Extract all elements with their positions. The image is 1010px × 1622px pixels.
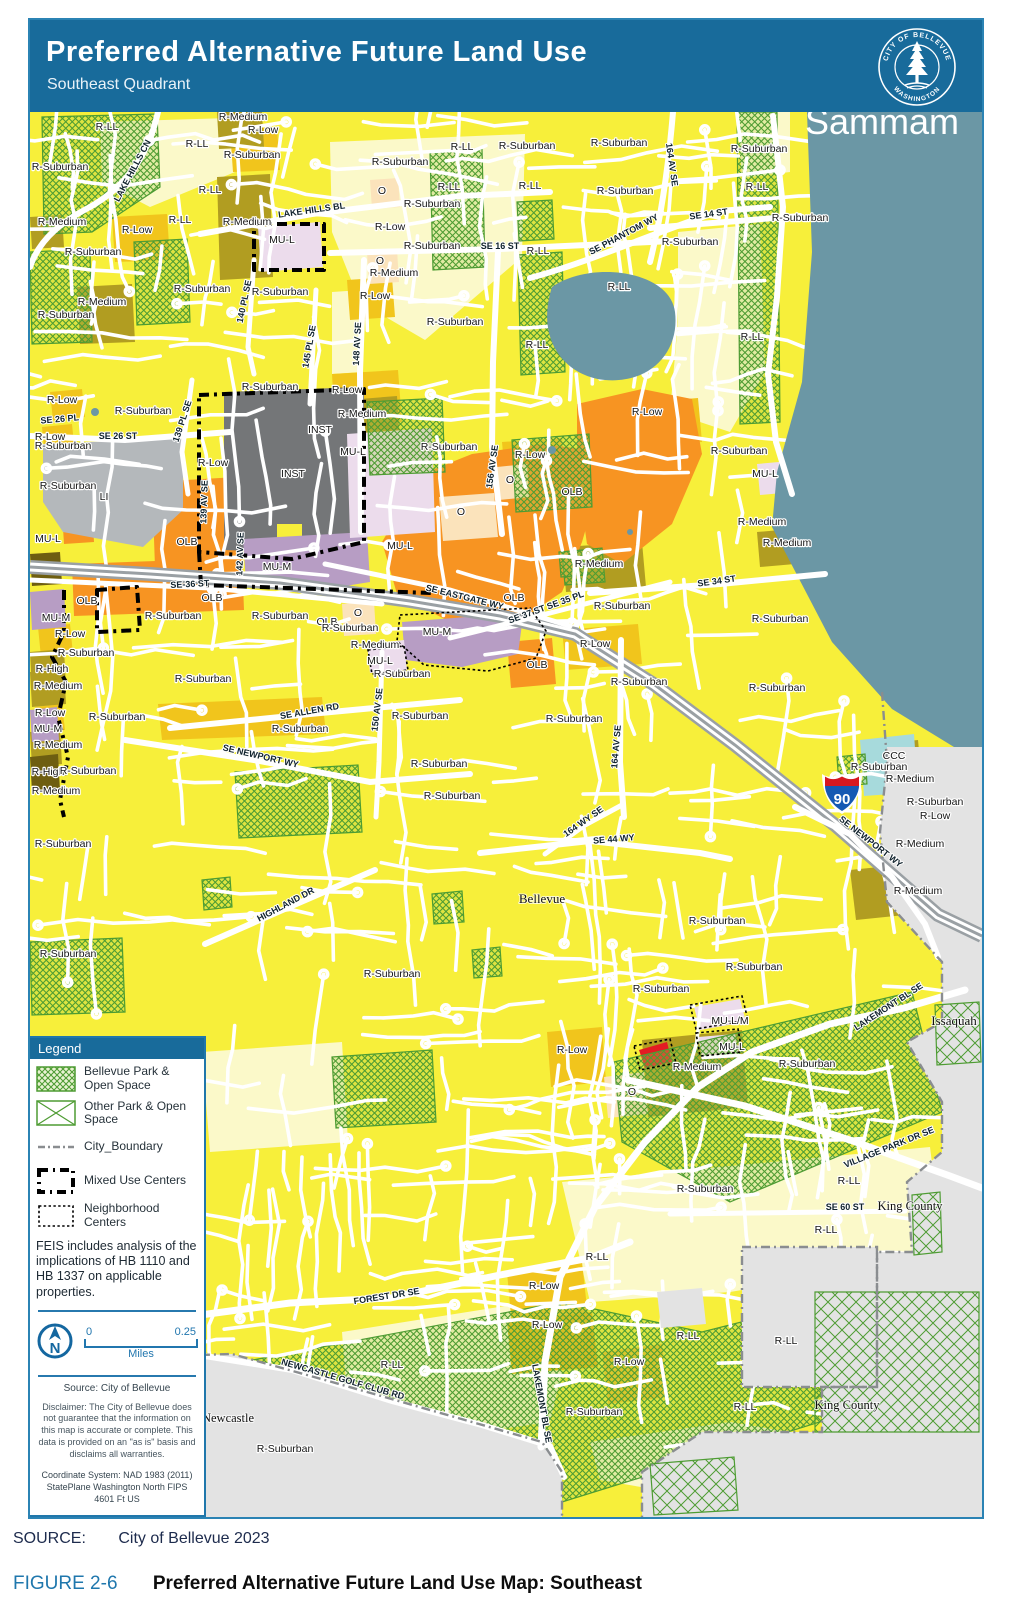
zone-label: R-Medium [673, 1061, 722, 1073]
road-label: SE 26 ST [99, 431, 138, 441]
map-title: Preferred Alternative Future Land Use [46, 36, 587, 69]
zone-label: R-Low [47, 394, 78, 406]
legend-item-mixed-use-centers: Mixed Use Centers [36, 1167, 198, 1195]
legend-item-neighborhood-centers: Neighborhood Centers [36, 1202, 198, 1230]
zone-label: R-Suburban [145, 610, 202, 622]
other-park-swatch-icon [36, 1100, 80, 1126]
other-park-area [650, 1457, 738, 1515]
zone-label: R-Suburban [424, 790, 481, 802]
lake-sammamish-label: Sammam [805, 112, 959, 142]
zone-label: R-Medium [38, 216, 87, 228]
legend-item-label: Bellevue Park & Open Space [84, 1065, 169, 1093]
place-label: Newcastle [202, 1411, 255, 1425]
scale-bar: 0 0.25 Miles [84, 1326, 198, 1360]
zone-label: R-Low [375, 221, 406, 233]
zone-label: R-Suburban [633, 983, 690, 995]
zone-label: R-Low [55, 628, 86, 640]
zone-label: OLB [176, 536, 197, 548]
zone-label: MU-L [752, 468, 778, 480]
bellevue-park-area [432, 891, 464, 924]
zone-label: R-LL [775, 1335, 798, 1347]
map-subtitle: Southeast Quadrant [47, 76, 190, 94]
zone-label: OLB [503, 592, 524, 604]
road-label: 139 AV SE [198, 480, 210, 524]
zone-label: R-Medium [738, 516, 787, 528]
zone-label: R-Suburban [404, 240, 461, 252]
zone-label: MU-L [387, 540, 413, 552]
zone-label: R-Suburban [392, 710, 449, 722]
road-label: SE 60 ST [826, 1202, 865, 1212]
zone-label: R-Medium [34, 739, 83, 751]
zone-label: R-Suburban [32, 161, 89, 173]
zone-label: OLB [201, 592, 222, 604]
place-label: King County [878, 1199, 944, 1213]
zone-label: R-Suburban [242, 381, 299, 393]
zone-label: R-Suburban [272, 723, 329, 735]
legend-item-label: City_Boundary [84, 1140, 163, 1154]
road-label: SE 16 ST [481, 241, 520, 251]
place-label: Bellevue [519, 891, 565, 906]
zone-label: R-LL [199, 184, 222, 196]
zone-label: R-Suburban [689, 915, 746, 927]
page: Preferred Alternative Future Land Use So… [0, 0, 1010, 1622]
zone-label: R-Suburban [374, 668, 431, 680]
legend-item-label: Neighborhood Centers [84, 1202, 159, 1230]
zone-label: R-Low [360, 290, 391, 302]
zone-label: R-LL [838, 1175, 861, 1187]
neighborhood-centers-swatch-icon [36, 1203, 80, 1229]
zone-label: MU-M [263, 561, 292, 573]
zone-label: O [506, 474, 514, 486]
zone-label: R-Suburban [65, 246, 122, 258]
scale-unit: Miles [84, 1348, 198, 1360]
place-label: King County [815, 1398, 881, 1412]
zone-label: R-Suburban [175, 673, 232, 685]
zone-label: R-LL [96, 121, 119, 133]
zone-label: R-LL [586, 1251, 609, 1263]
bellevue-park-swatch-icon [36, 1066, 80, 1092]
north-arrow-icon: N [36, 1322, 74, 1365]
zone-label: R-Suburban [35, 440, 92, 452]
bellevue-park-area [517, 200, 554, 241]
zone-label: R-Suburban [252, 610, 309, 622]
zone-label: MU-M [42, 612, 71, 624]
zone-label: R-LL [734, 1401, 757, 1413]
mixed-use-centers-swatch-icon [36, 1167, 80, 1195]
zone-label: O [457, 506, 465, 518]
zone-label: R-Low [515, 449, 546, 461]
feis-note: FEIS includes analysis of the implicatio… [30, 1237, 204, 1306]
zone-label: R-Suburban [364, 968, 421, 980]
legend-panel: Legend Bellevue Park & Open Space Other … [30, 1036, 206, 1517]
city-boundary-swatch-icon [36, 1134, 80, 1160]
zone-label: R-Suburban [60, 765, 117, 777]
zone-label: R-Suburban [40, 480, 97, 492]
zone-label: R-LL [519, 180, 542, 192]
zone-label: R-Medium [763, 537, 812, 549]
zone-label: R-Low [332, 384, 363, 396]
zone-label: MU-L [269, 234, 295, 246]
zone-label: R-LL [746, 181, 769, 193]
zone-label: INST [281, 468, 306, 480]
zone-label: R-LL [608, 281, 631, 293]
zone-label: R-Suburban [566, 1406, 623, 1418]
zone-label: R-Medium [78, 296, 127, 308]
zone-label: R-Suburban [611, 676, 668, 688]
svg-text:90: 90 [834, 791, 851, 808]
bellevue-park-area [332, 1050, 436, 1128]
zone-label: MU-M [423, 626, 452, 638]
zone-label: R-LL [526, 339, 549, 351]
legend-item-bellevue-park: Bellevue Park & Open Space [36, 1065, 198, 1093]
zone-label: R-Suburban [38, 309, 95, 321]
zone-label: R-Low [532, 1319, 563, 1331]
zone-label: R-Suburban [772, 212, 829, 224]
scale-end: 0.25 [175, 1326, 196, 1338]
legend-divider [38, 1375, 196, 1377]
zone-label: R-Suburban [404, 198, 461, 210]
zone-label: R-Suburban [322, 622, 379, 634]
legend-source: Source: City of Bellevue [34, 1383, 200, 1394]
zone-label: R-Suburban [779, 1058, 836, 1070]
zone-label: R-Low [614, 1356, 645, 1368]
source-value: City of Bellevue 2023 [118, 1530, 269, 1547]
map-header: Preferred Alternative Future Land Use So… [30, 20, 982, 112]
zone-label: R-Suburban [89, 711, 146, 723]
zone-label: R-Low [920, 810, 951, 822]
place-label: Issaquah [931, 1013, 977, 1028]
zone-label: R-Suburban [711, 445, 768, 457]
zone-label: INST [308, 424, 333, 436]
zone-label: R-Medium [886, 773, 935, 785]
figure-caption: FIGURE 2-6 Preferred Alternative Future … [13, 1573, 642, 1595]
zone-label: R-LL [186, 138, 209, 150]
zone-label: R-Medium [894, 885, 943, 897]
zone-label: R-Low [580, 638, 611, 650]
zone-label: R-Suburban [677, 1183, 734, 1195]
evergreen-tree-icon [905, 41, 929, 88]
zone-label: OLB [526, 659, 547, 671]
zone-label: R-Medium [219, 112, 268, 123]
zone-label: R-LL [438, 181, 461, 193]
zone-label: MU-L [340, 446, 366, 458]
zone-label: R-Low [529, 1280, 560, 1292]
svg-text:N: N [50, 1340, 61, 1357]
zone-label: R-Suburban [597, 185, 654, 197]
road-label: SE-36 ST [170, 578, 210, 590]
zone-label: R-Medium [351, 639, 400, 651]
zone-label: MU-L [719, 1041, 745, 1053]
zone-label: R-Suburban [174, 283, 231, 295]
zone-label: R-Medium [370, 267, 419, 279]
zone-label: R-Suburban [749, 682, 806, 694]
zone-label: R-Suburban [662, 236, 719, 248]
legend-title: Legend [30, 1038, 204, 1059]
zone-label: O [376, 255, 384, 267]
zone-label: R-High [36, 663, 69, 675]
zone-label: R-Suburban [35, 838, 92, 850]
map-area: 90SammamR-LLR-LLR-MediumR-LowR-SuburbanR… [30, 112, 982, 1517]
zone-label: LI [100, 491, 109, 503]
scale-start: 0 [86, 1326, 92, 1338]
zone-label: R-Suburban [257, 1443, 314, 1455]
zone-label: R-LL [815, 1224, 838, 1236]
zone-label: R-Suburban [252, 286, 309, 298]
legend-item-city-boundary: City_Boundary [36, 1134, 198, 1160]
zone-label: R-Suburban [427, 316, 484, 328]
legend-item-label: Mixed Use Centers [84, 1174, 186, 1188]
zone-label: R-Suburban [591, 137, 648, 149]
zone-label: R-Low [248, 124, 279, 136]
zone-label: O [378, 185, 386, 197]
zone-label: R-LL [451, 141, 474, 153]
zone-label: MU-L/M [711, 1015, 748, 1027]
zone-label: R-Suburban [546, 713, 603, 725]
zone-label: R-Suburban [594, 600, 651, 612]
zone-label: R-Suburban [907, 796, 964, 808]
zone-label: R-Suburban [752, 613, 809, 625]
legend-disclaimer: Disclaimer: The City of Bellevue does no… [36, 1402, 198, 1460]
zone-label: R-Suburban [499, 140, 556, 152]
legend-item-label: Other Park & Open Space [84, 1100, 186, 1128]
zone-label: R-Suburban [411, 758, 468, 770]
zone-label: R-Medium [575, 558, 624, 570]
zone-label: R-Medium [223, 216, 272, 228]
legend-item-other-park: Other Park & Open Space [36, 1100, 198, 1128]
unincorporated-area [657, 1288, 706, 1328]
zone-label: R-Medium [338, 408, 387, 420]
other-park-area [935, 1002, 981, 1065]
zone-label: R-Suburban [421, 441, 478, 453]
landuse-rll [202, 1042, 348, 1152]
zone-label: R-Medium [34, 680, 83, 692]
zone-label: R-Suburban [58, 647, 115, 659]
zone-label: R-Medium [896, 838, 945, 850]
zone-label: R-LL [381, 1359, 404, 1371]
zone-label: R-Suburban [224, 149, 281, 161]
city-of-bellevue-logo: CITY OF BELLEVUE WASHINGTON [876, 26, 958, 113]
zone-label: R-Medium [32, 785, 81, 797]
major-road [670, 1211, 905, 1214]
source-row: SOURCE: City of Bellevue 2023 [13, 1530, 270, 1548]
zone-label: OLB [561, 486, 582, 498]
zone-label: R-Suburban [40, 948, 97, 960]
road-label: 142 AV SE [234, 532, 246, 576]
zone-label: OLB [76, 595, 97, 607]
zone-label: R-Suburban [851, 761, 908, 773]
legend-divider [38, 1310, 196, 1312]
map-frame: Preferred Alternative Future Land Use So… [28, 18, 984, 1519]
zone-label: R-Suburban [115, 405, 172, 417]
zone-label: R-LL [527, 245, 550, 257]
zone-label: R-Low [35, 707, 66, 719]
figure-title: Preferred Alternative Future Land Use Ma… [153, 1573, 642, 1594]
zone-label: O [628, 1086, 636, 1098]
zone-label: MU-L [367, 655, 393, 667]
zone-label: R-Low [557, 1044, 588, 1056]
zone-label: O [354, 607, 362, 619]
figure-label: FIGURE 2-6 [13, 1573, 118, 1594]
zone-label: R-LL [169, 214, 192, 226]
zone-label: MU-M [34, 723, 63, 735]
zone-label: R-Suburban [372, 156, 429, 168]
zone-label: R-LL [741, 331, 764, 343]
zone-label: R-Suburban [726, 961, 783, 973]
zone-label: R-Suburban [731, 143, 788, 155]
zone-label: MU-L [35, 533, 61, 545]
legend-coordinate-system: Coordinate System: NAD 1983 (2011) State… [36, 1470, 198, 1505]
source-label: SOURCE: [13, 1530, 86, 1547]
zone-label: R-Low [198, 457, 229, 469]
zone-label: R-Low [122, 224, 153, 236]
zone-label: R-Low [632, 406, 663, 418]
zone-label: R-LL [677, 1330, 700, 1342]
